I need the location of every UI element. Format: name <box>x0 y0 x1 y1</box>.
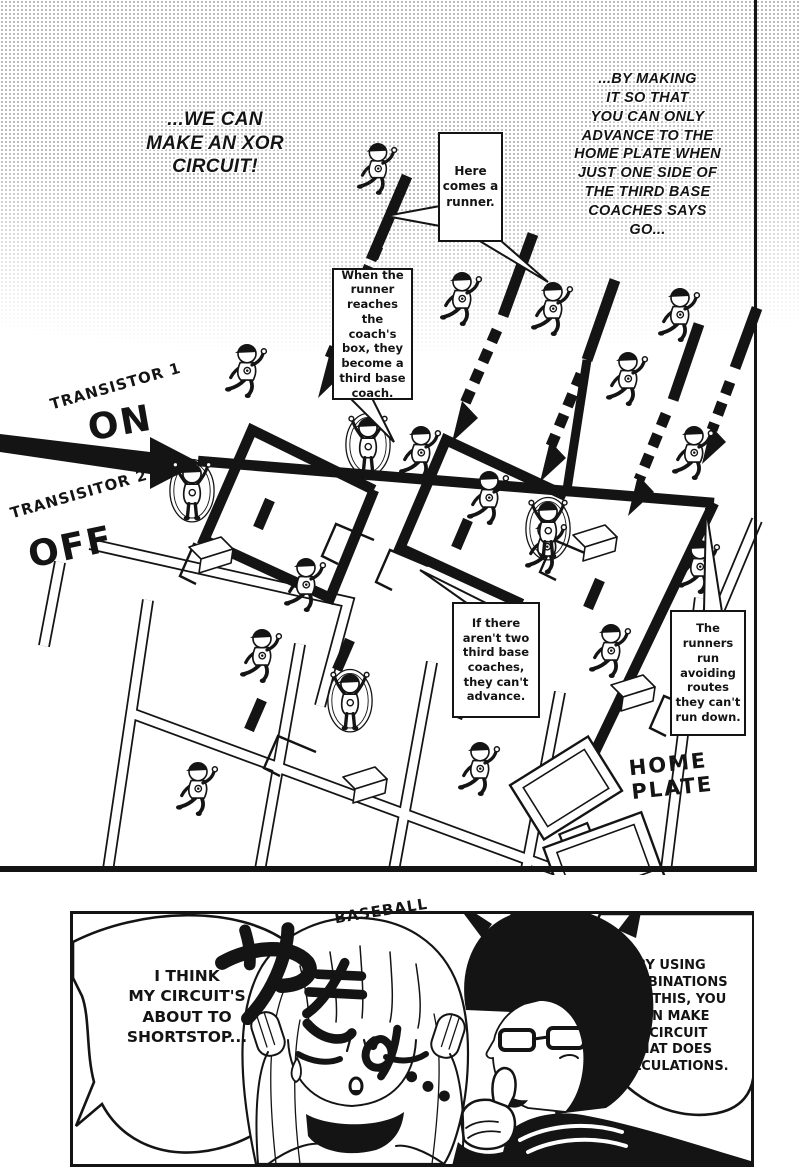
callout-become-coach: When the runner reaches the coach's box,… <box>332 268 413 400</box>
manga-page: ...WE CAN MAKE AN XOR CIRCUIT! ...BY MAK… <box>0 0 800 1167</box>
label-home-plate: HOME PLATE <box>628 748 715 805</box>
on-wiring <box>198 360 714 792</box>
panel1-bottom-border <box>0 866 757 872</box>
panel1-right-border <box>754 0 757 872</box>
caption-by-making: ...BY MAKING IT SO THAT YOU CAN ONLY ADV… <box>545 70 750 240</box>
bubble-text-calculations: BY USING COMBINATIONS LIKE THIS, YOU CAN… <box>596 958 746 1076</box>
callout-cant-advance: If there aren't two third base coaches, … <box>452 602 540 718</box>
caption-xor-circuit: ...WE CAN MAKE AN XOR CIRCUIT! <box>100 108 330 179</box>
callout-here-comes-runner: Here comes a runner. <box>438 132 503 242</box>
callout-avoid-routes: The runners run avoiding routes they can… <box>670 610 746 736</box>
bubble-text-shortstop: I THINK MY CIRCUIT'S ABOUT TO SHORTSTOP.… <box>82 966 292 1048</box>
